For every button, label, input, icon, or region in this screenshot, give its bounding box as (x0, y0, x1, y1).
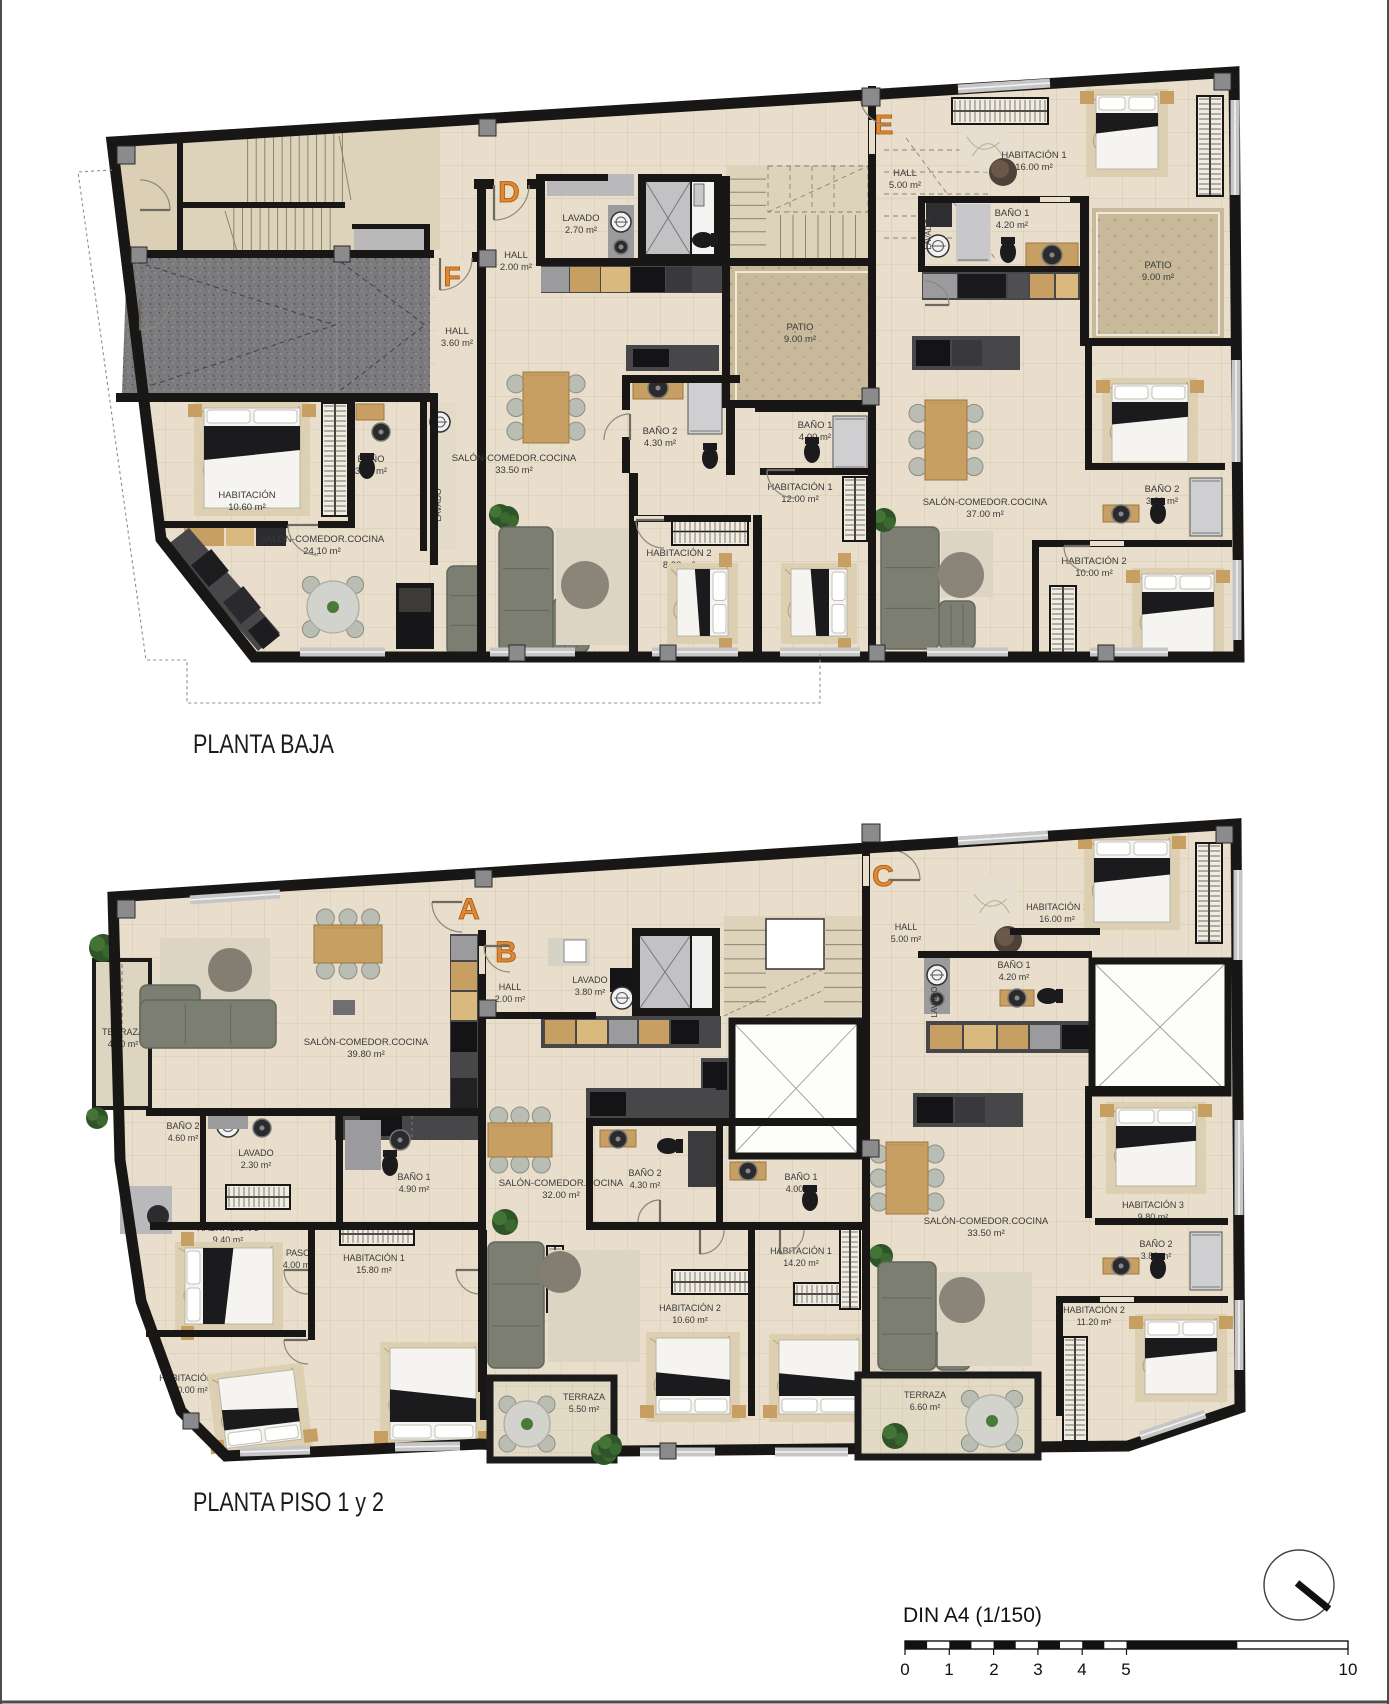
svg-text:3.80 m²: 3.80 m² (575, 987, 606, 997)
svg-text:PLANTA PISO 1 y 2: PLANTA PISO 1 y 2 (193, 1487, 384, 1517)
svg-text:5: 5 (1121, 1660, 1130, 1679)
svg-text:PATIO: PATIO (1144, 260, 1171, 271)
svg-text:2.00 m²: 2.00 m² (495, 994, 526, 1004)
svg-text:16.00 m²: 16.00 m² (1039, 914, 1075, 924)
svg-text:16.00 m²: 16.00 m² (1015, 162, 1053, 173)
svg-text:LAVADO: LAVADO (562, 213, 599, 224)
svg-text:4.60 m²: 4.60 m² (168, 1133, 199, 1143)
svg-text:6.60 m²: 6.60 m² (910, 1402, 941, 1412)
svg-text:C: C (872, 860, 894, 893)
svg-text:LAVADO: LAVADO (924, 218, 933, 249)
svg-text:9.00 m²: 9.00 m² (1142, 272, 1174, 283)
svg-text:11.20 m²: 11.20 m² (1077, 1317, 1112, 1327)
svg-text:4.20 m²: 4.20 m² (999, 972, 1030, 982)
svg-text:HABITACIÓN 3: HABITACIÓN 3 (1122, 1200, 1184, 1210)
svg-text:HABITACIÓN 2: HABITACIÓN 2 (1063, 1305, 1125, 1315)
svg-text:4: 4 (1077, 1660, 1086, 1679)
svg-text:24.10 m²: 24.10 m² (303, 546, 341, 557)
svg-text:A: A (458, 893, 480, 926)
svg-text:5.50 m²: 5.50 m² (569, 1404, 600, 1414)
svg-text:DIN A4 (1/150): DIN A4 (1/150) (903, 1604, 1042, 1627)
svg-text:HALL: HALL (504, 250, 528, 261)
svg-text:SALÓN-COMEDOR.COCINA: SALÓN-COMEDOR.COCINA (923, 497, 1048, 508)
svg-text:39.80 m²: 39.80 m² (347, 1049, 385, 1060)
svg-text:3.60 m²: 3.60 m² (441, 338, 473, 349)
svg-text:HALL: HALL (499, 982, 522, 992)
svg-text:HALL: HALL (893, 168, 917, 179)
svg-text:32.00 m²: 32.00 m² (542, 1190, 580, 1201)
svg-text:HABITACIÓN: HABITACIÓN (218, 490, 275, 501)
svg-text:SALÓN-COMEDOR.COCINA: SALÓN-COMEDOR.COCINA (260, 534, 385, 545)
svg-text:4.30 m²: 4.30 m² (644, 438, 676, 449)
svg-text:37.00 m²: 37.00 m² (966, 509, 1004, 520)
svg-text:BAÑO 2: BAÑO 2 (166, 1121, 199, 1131)
svg-text:BAÑO 1: BAÑO 1 (798, 420, 833, 431)
svg-text:BAÑO 1: BAÑO 1 (997, 960, 1030, 970)
svg-text:LAVADO: LAVADO (572, 975, 607, 985)
svg-text:HABITACIÓN 1: HABITACIÓN 1 (1001, 150, 1066, 161)
svg-text:0: 0 (900, 1660, 909, 1679)
svg-text:HALL: HALL (445, 326, 469, 337)
svg-text:2.30 m²: 2.30 m² (241, 1160, 272, 1170)
svg-text:3: 3 (1033, 1660, 1042, 1679)
svg-text:5.00 m²: 5.00 m² (891, 934, 922, 944)
svg-text:BAÑO 1: BAÑO 1 (397, 1172, 430, 1182)
svg-text:1: 1 (944, 1660, 953, 1679)
svg-text:LAVADO: LAVADO (930, 986, 939, 1017)
svg-text:BAÑO 1: BAÑO 1 (784, 1172, 817, 1182)
svg-text:PLANTA BAJA: PLANTA BAJA (193, 729, 334, 759)
svg-text:2.70 m²: 2.70 m² (565, 225, 597, 236)
svg-text:5.00 m²: 5.00 m² (889, 180, 921, 191)
svg-text:33.50 m²: 33.50 m² (967, 1228, 1005, 1239)
svg-text:33.50 m²: 33.50 m² (495, 465, 533, 476)
svg-text:HABITACIÓN 2: HABITACIÓN 2 (646, 548, 711, 559)
svg-text:D: D (498, 176, 520, 209)
svg-text:SALÓN-COMEDOR.COCINA: SALÓN-COMEDOR.COCINA (924, 1216, 1049, 1227)
svg-text:TERRAZA: TERRAZA (102, 1027, 144, 1037)
svg-text:BAÑO 2: BAÑO 2 (643, 426, 678, 437)
svg-text:BAÑO 2: BAÑO 2 (1145, 484, 1180, 495)
svg-text:2.00 m²: 2.00 m² (500, 262, 532, 273)
svg-text:10: 10 (1339, 1660, 1358, 1679)
svg-text:HALL: HALL (895, 922, 918, 932)
svg-text:B: B (495, 936, 517, 969)
svg-text:PATIO: PATIO (786, 322, 813, 333)
svg-text:HABITACIÓN 2: HABITACIÓN 2 (1061, 556, 1126, 567)
svg-text:4.20 m²: 4.20 m² (996, 220, 1028, 231)
svg-text:BAÑO 2: BAÑO 2 (1139, 1239, 1172, 1249)
svg-text:TERRAZA: TERRAZA (563, 1392, 605, 1402)
svg-text:PASO: PASO (286, 1248, 310, 1258)
svg-text:TERRAZA: TERRAZA (904, 1390, 946, 1400)
svg-text:SALÓN-COMEDOR.COCINA: SALÓN-COMEDOR.COCINA (304, 1037, 429, 1048)
svg-text:12.00 m²: 12.00 m² (781, 494, 819, 505)
svg-text:10.60 m²: 10.60 m² (672, 1315, 708, 1325)
svg-text:4.90 m²: 4.90 m² (399, 1184, 430, 1194)
svg-text:2: 2 (989, 1660, 998, 1679)
svg-text:LAVADO: LAVADO (238, 1148, 273, 1158)
svg-text:BAÑO 2: BAÑO 2 (628, 1168, 661, 1178)
svg-text:SALÓN-COMEDOR.COCINA: SALÓN-COMEDOR.COCINA (452, 453, 577, 464)
svg-text:15.80 m²: 15.80 m² (356, 1265, 392, 1275)
svg-text:HABITACIÓN 2: HABITACIÓN 2 (659, 1303, 721, 1313)
svg-text:SALÓN-COMEDOR.COCINA: SALÓN-COMEDOR.COCINA (499, 1178, 624, 1189)
svg-text:10.60 m²: 10.60 m² (228, 502, 266, 513)
svg-text:14.20 m²: 14.20 m² (783, 1258, 819, 1268)
svg-text:HABITACIÓN 1: HABITACIÓN 1 (343, 1253, 405, 1263)
svg-text:10.00 m²: 10.00 m² (1075, 568, 1113, 579)
svg-text:4.30 m²: 4.30 m² (630, 1180, 661, 1190)
svg-text:HABITACIÓN 1: HABITACIÓN 1 (1026, 902, 1088, 912)
svg-text:9.00 m²: 9.00 m² (784, 334, 816, 345)
svg-text:BAÑO 1: BAÑO 1 (995, 208, 1030, 219)
